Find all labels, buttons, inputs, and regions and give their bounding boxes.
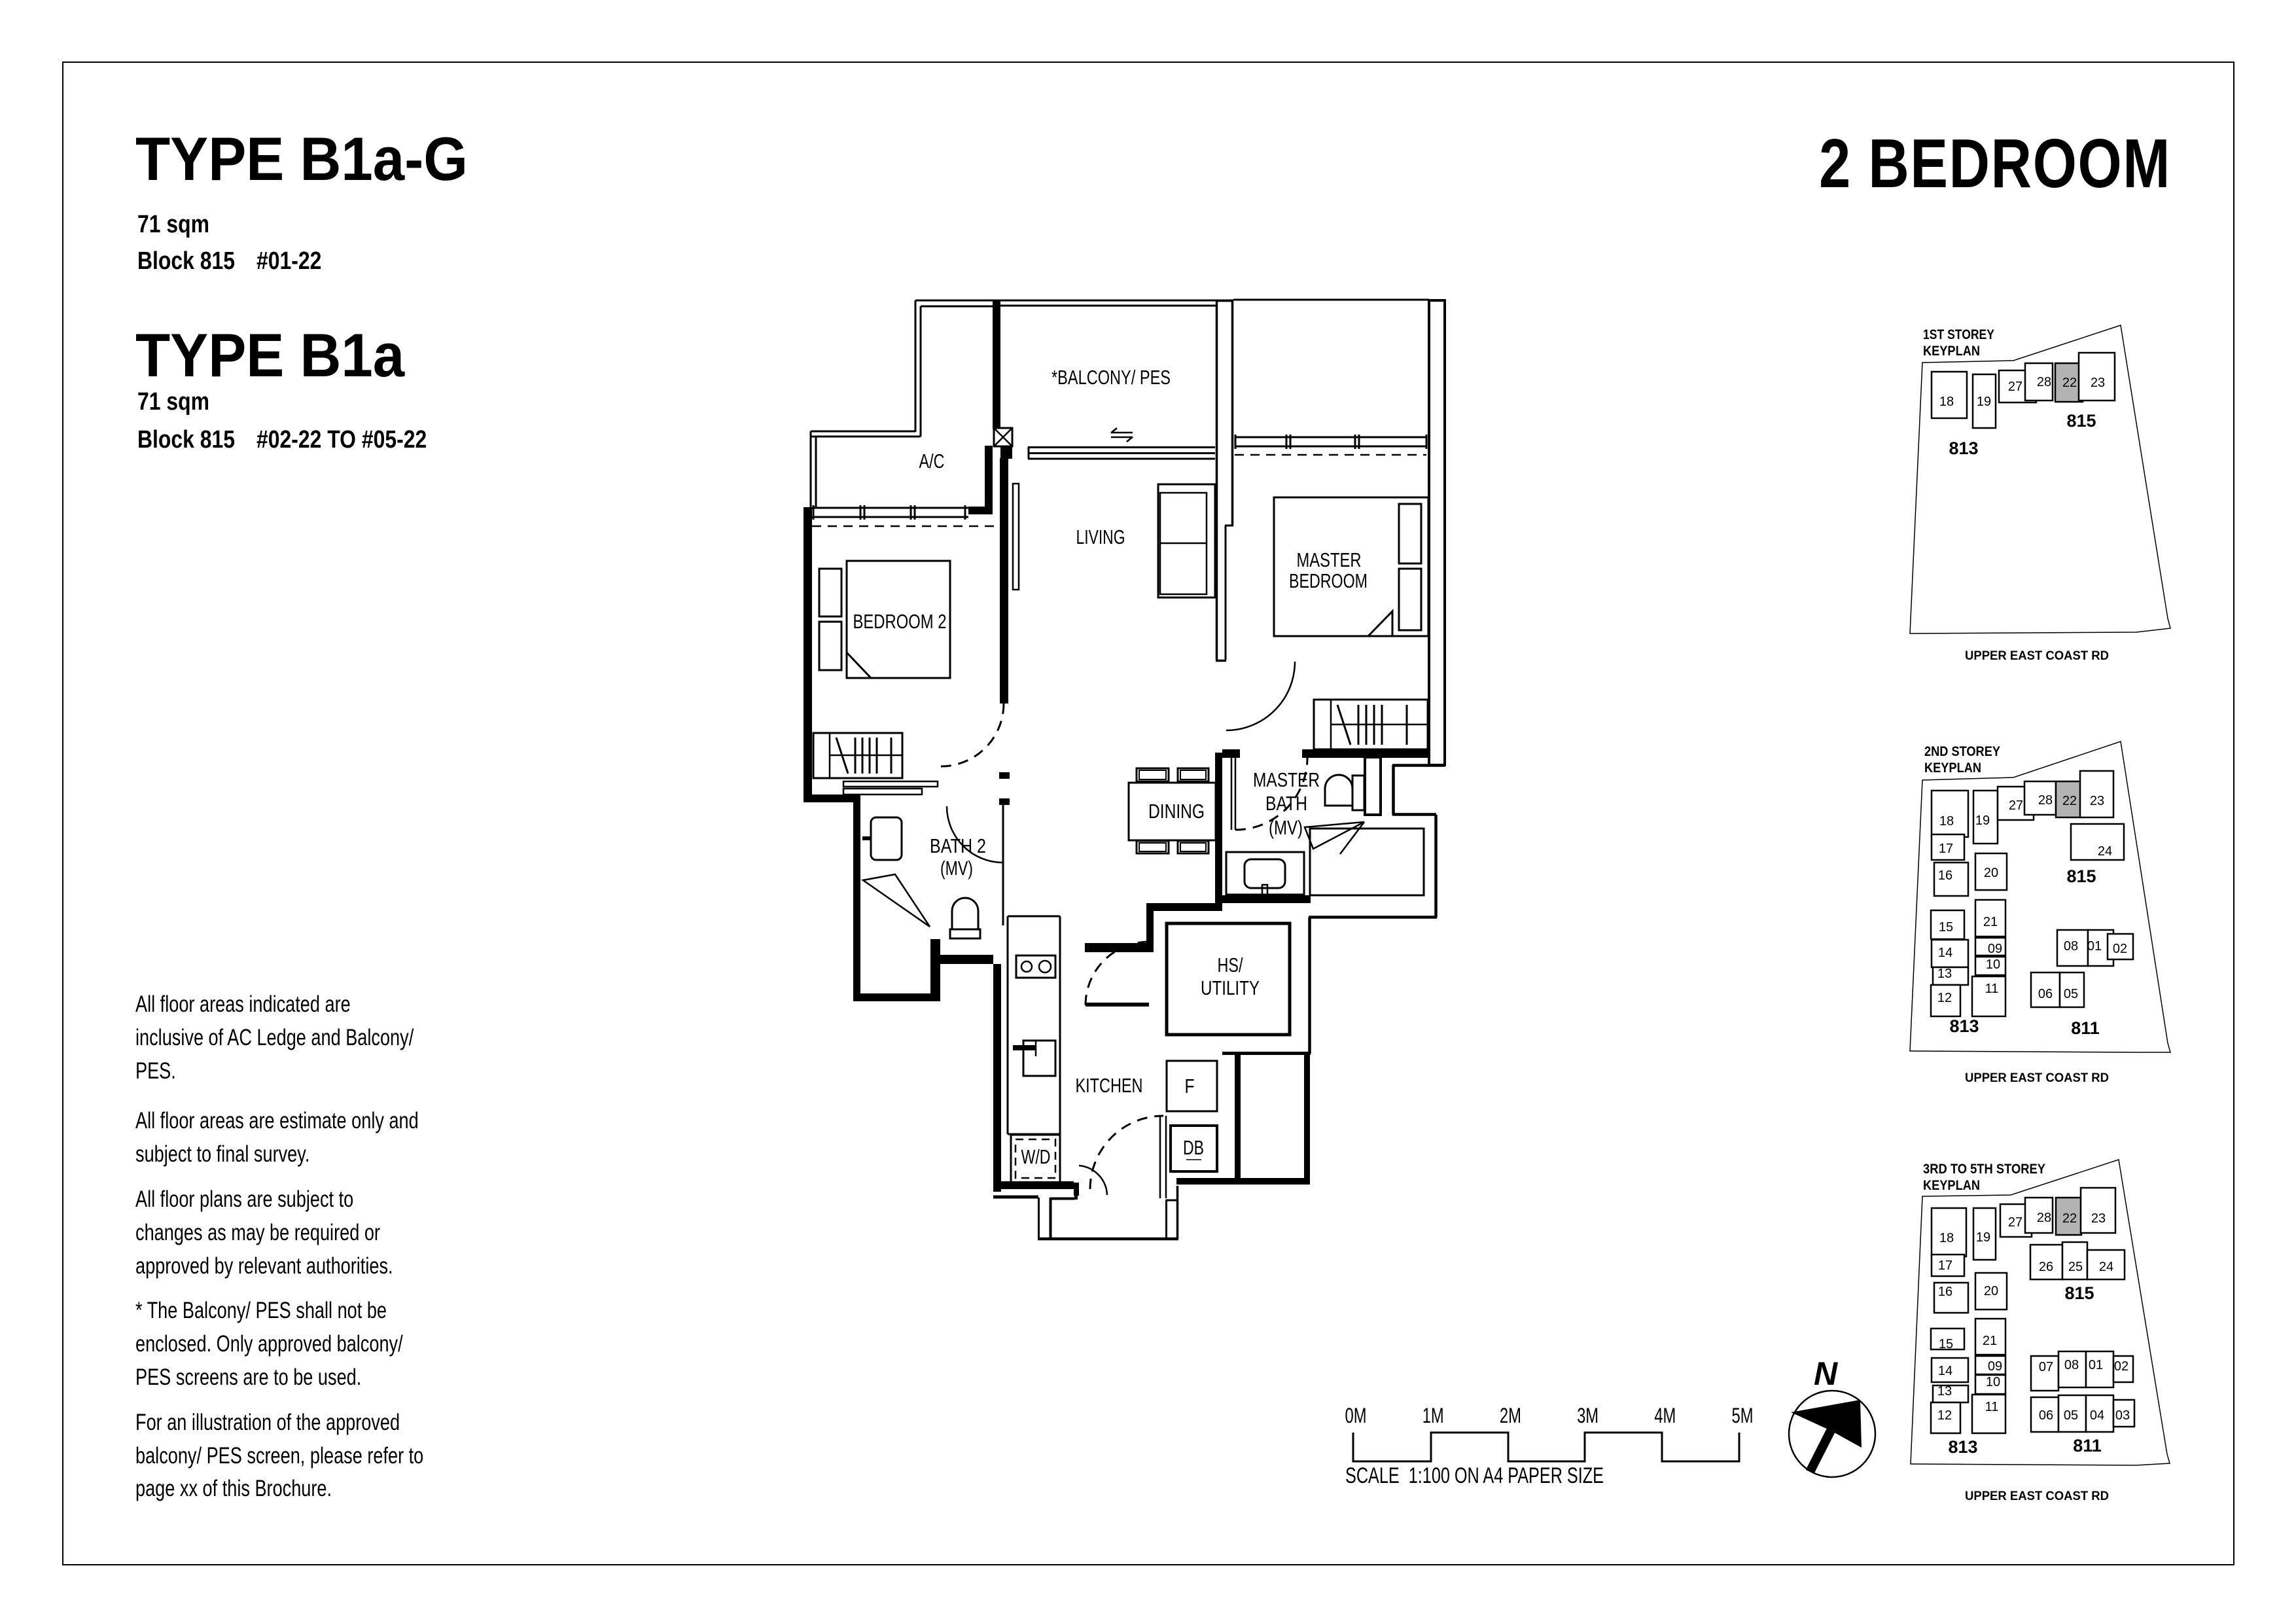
svg-text:01: 01 [2087, 939, 2102, 954]
svg-text:3RD TO 5TH STOREY: 3RD TO 5TH STOREY [1923, 1162, 2045, 1177]
svg-text:811: 811 [2071, 1018, 2100, 1038]
svg-text:815: 815 [2064, 1283, 2094, 1303]
svg-text:815: 815 [2066, 866, 2096, 886]
svg-text:13: 13 [1937, 967, 1952, 981]
svg-text:11: 11 [1985, 1400, 1999, 1414]
svg-text:15: 15 [1939, 1337, 1953, 1351]
svg-text:22: 22 [2062, 1211, 2077, 1226]
svg-text:0M: 0M [1345, 1404, 1367, 1427]
svg-text:05: 05 [2064, 987, 2078, 1001]
svg-text:18: 18 [1939, 1231, 1954, 1245]
svg-text:*BALCONY/ PES: *BALCONY/ PES [1051, 366, 1171, 389]
svg-text:BEDROOM: BEDROOM [1289, 569, 1368, 592]
svg-text:19: 19 [1976, 1230, 1990, 1245]
svg-text:MASTER: MASTER [1297, 548, 1362, 571]
svg-text:11: 11 [1985, 982, 1999, 996]
svg-text:08: 08 [2064, 1358, 2079, 1372]
svg-text:18: 18 [1939, 395, 1954, 409]
svg-text:01: 01 [2089, 1358, 2103, 1372]
svg-text:F: F [1185, 1075, 1195, 1097]
svg-text:09: 09 [1988, 942, 2002, 956]
svg-text:21: 21 [1983, 1334, 1997, 1348]
svg-text:28: 28 [2037, 375, 2051, 389]
svg-text:02: 02 [2114, 1359, 2128, 1374]
svg-text:28: 28 [2037, 1211, 2051, 1225]
svg-text:23: 23 [2091, 376, 2105, 390]
svg-text:DB: DB [1183, 1136, 1204, 1159]
svg-text:05: 05 [2064, 1408, 2078, 1423]
svg-text:08: 08 [2064, 939, 2078, 954]
svg-text:UPPER EAST COAST RD: UPPER EAST COAST RD [1965, 1071, 2109, 1085]
svg-text:4M: 4M [1654, 1404, 1676, 1427]
svg-text:17: 17 [1939, 842, 1953, 856]
svg-text:23: 23 [2091, 1211, 2106, 1226]
svg-text:2ND STOREY: 2ND STOREY [1924, 744, 2000, 759]
svg-text:14: 14 [1938, 1364, 1952, 1378]
svg-text:(MV): (MV) [1269, 816, 1303, 839]
svg-text:UPPER EAST COAST RD: UPPER EAST COAST RD [1965, 649, 2109, 663]
svg-text:LIVING: LIVING [1076, 526, 1125, 548]
svg-text:25: 25 [2068, 1260, 2083, 1274]
svg-text:BEDROOM 2: BEDROOM 2 [853, 610, 947, 633]
svg-text:2M: 2M [1500, 1404, 1521, 1427]
svg-text:22: 22 [2062, 376, 2077, 390]
svg-text:KITCHEN: KITCHEN [1076, 1074, 1143, 1097]
svg-text:BATH 2: BATH 2 [930, 834, 986, 857]
svg-text:813: 813 [1949, 1016, 1979, 1036]
svg-text:SCALE 1:100 ON A4 PAPER SIZE: SCALE 1:100 ON A4 PAPER SIZE [1345, 1463, 1604, 1488]
svg-text:3M: 3M [1577, 1404, 1598, 1427]
svg-text:02: 02 [2113, 942, 2127, 956]
svg-text:27: 27 [2008, 380, 2022, 394]
svg-text:23: 23 [2090, 794, 2104, 808]
svg-text:20: 20 [1984, 1284, 1998, 1298]
svg-text:811: 811 [2073, 1436, 2102, 1455]
svg-text:22: 22 [2062, 794, 2077, 808]
svg-text:09: 09 [1988, 1359, 2002, 1374]
svg-text:12: 12 [1937, 1408, 1952, 1423]
svg-text:04: 04 [2090, 1408, 2104, 1423]
svg-text:1ST STOREY: 1ST STOREY [1923, 327, 1994, 342]
svg-text:27: 27 [2008, 1215, 2022, 1230]
svg-text:DINING: DINING [1148, 800, 1205, 823]
svg-text:BATH: BATH [1265, 792, 1307, 815]
svg-text:27: 27 [2009, 798, 2023, 813]
svg-text:1M: 1M [1422, 1404, 1444, 1427]
svg-text:813: 813 [1948, 1437, 1977, 1457]
svg-text:UPPER EAST COAST RD: UPPER EAST COAST RD [1965, 1489, 2109, 1503]
svg-text:19: 19 [1977, 395, 1991, 409]
svg-text:18: 18 [1939, 814, 1954, 829]
svg-text:UTILITY: UTILITY [1201, 976, 1260, 999]
svg-text:16: 16 [1938, 868, 1952, 883]
svg-text:A/C: A/C [919, 450, 945, 473]
svg-text:12: 12 [1937, 991, 1952, 1005]
svg-text:10: 10 [1986, 957, 2000, 972]
svg-text:HS/: HS/ [1218, 954, 1243, 976]
svg-text:(MV): (MV) [940, 857, 973, 880]
svg-text:14: 14 [1938, 946, 1952, 960]
svg-text:19: 19 [1975, 813, 1990, 828]
svg-text:24: 24 [2098, 844, 2112, 859]
svg-text:06: 06 [2038, 987, 2053, 1001]
svg-text:W/D: W/D [1021, 1145, 1051, 1168]
svg-text:815: 815 [2066, 411, 2096, 431]
svg-text:21: 21 [1983, 915, 1998, 929]
svg-text:10: 10 [1986, 1375, 2000, 1389]
svg-text:28: 28 [2038, 793, 2053, 808]
svg-text:13: 13 [1937, 1384, 1952, 1399]
svg-text:07: 07 [2039, 1360, 2053, 1374]
svg-text:26: 26 [2039, 1260, 2053, 1274]
svg-text:KEYPLAN: KEYPLAN [1924, 760, 1981, 776]
svg-text:KEYPLAN: KEYPLAN [1923, 1178, 1980, 1193]
svg-text:5M: 5M [1732, 1404, 1754, 1427]
svg-text:20: 20 [1984, 866, 1998, 880]
svg-text:06: 06 [2039, 1408, 2053, 1423]
svg-text:MASTER: MASTER [1253, 768, 1320, 791]
svg-text:N: N [1814, 1355, 1838, 1392]
svg-text:24: 24 [2099, 1260, 2113, 1274]
svg-text:17: 17 [1938, 1258, 1952, 1273]
svg-text:KEYPLAN: KEYPLAN [1923, 344, 1980, 359]
svg-text:16: 16 [1938, 1285, 1952, 1299]
svg-text:813: 813 [1949, 438, 1978, 458]
svg-text:03: 03 [2115, 1408, 2130, 1423]
svg-text:15: 15 [1939, 920, 1953, 935]
